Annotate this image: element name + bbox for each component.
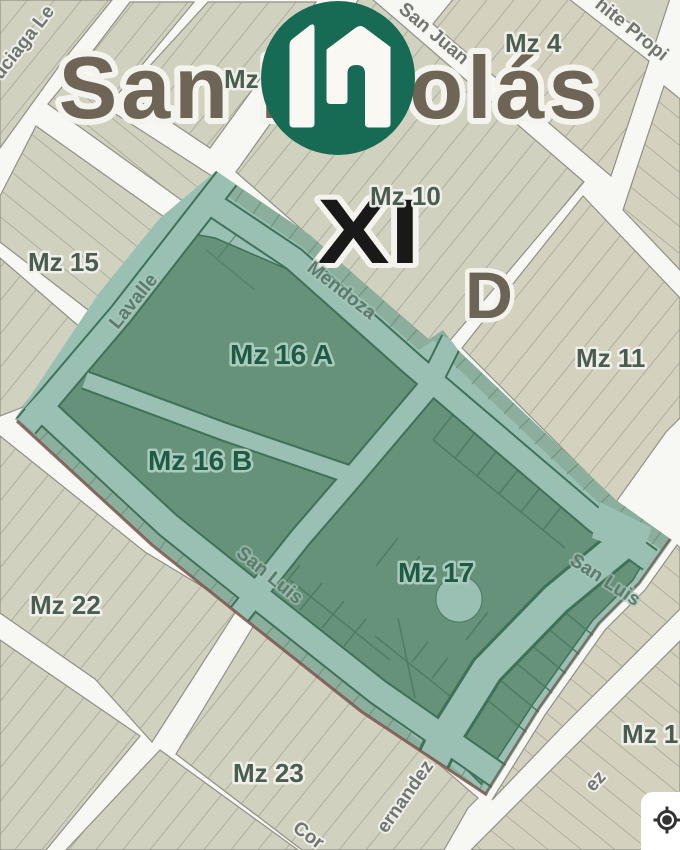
- svg-text:Mz 1: Mz 1: [622, 719, 678, 749]
- svg-text:Mz 23: Mz 23: [233, 758, 304, 788]
- svg-text:Mz 17: Mz 17: [398, 557, 474, 588]
- svg-text:Mz 16 B: Mz 16 B: [148, 445, 252, 476]
- svg-text:Mz 4: Mz 4: [505, 28, 562, 58]
- svg-text:Mz 15: Mz 15: [28, 247, 99, 277]
- svg-text:Mz 22: Mz 22: [30, 590, 101, 620]
- svg-text:Mz 11: Mz 11: [576, 343, 645, 373]
- svg-text:Mz 10: Mz 10: [370, 181, 441, 211]
- svg-text:Mz 16 A: Mz 16 A: [230, 339, 333, 370]
- svg-text:D: D: [465, 258, 513, 332]
